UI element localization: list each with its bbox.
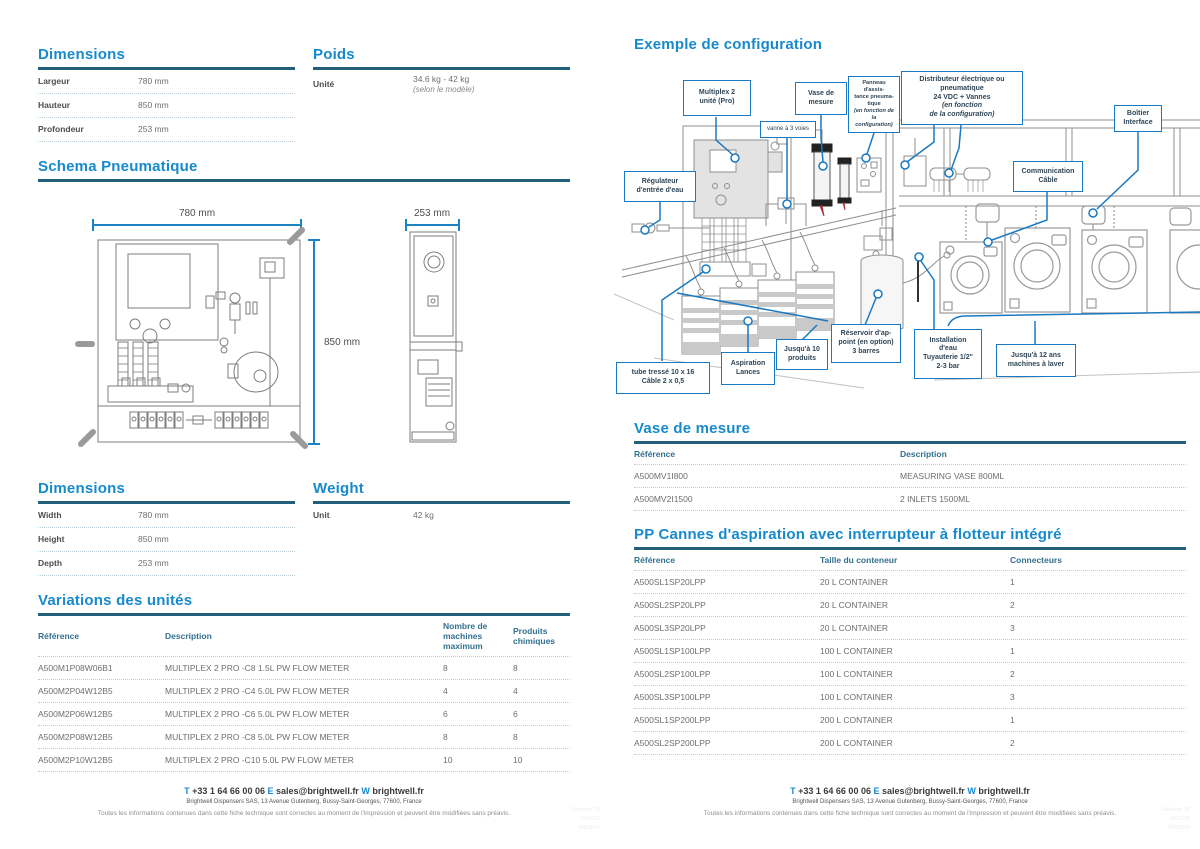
table-row: A500M2P06W12B5 MULTIPLEX 2 PRO -C6 5.0L … xyxy=(38,703,570,726)
col-produits: Produits chimiques xyxy=(513,626,570,646)
reservoir-art xyxy=(861,210,950,333)
phone-number: +33 1 64 66 00 06 xyxy=(798,786,871,796)
callout-installation-eau: Installation d'eau Tuyauterie 1/2" 2-3 b… xyxy=(914,329,982,379)
revision-note-right: Revision 15 G02025 BW2814 xyxy=(1130,806,1190,832)
table-row: Hauteur 850 mm xyxy=(38,94,295,118)
cell-taille: 200 L CONTAINER xyxy=(820,738,1010,748)
web-address: brightwell.fr xyxy=(372,786,424,796)
dimensions-en-title: Dimensions xyxy=(38,480,295,497)
email-label: E xyxy=(267,786,273,796)
email-address: sales@brightwell.fr xyxy=(882,786,965,796)
weight-row: Unit 42 kg xyxy=(313,504,570,528)
weight-title: Weight xyxy=(313,480,570,497)
table-row: A500M1P08W06B1 MULTIPLEX 2 PRO -C8 1.5L … xyxy=(38,657,570,680)
schema-title: Schema Pneumatique xyxy=(38,158,570,175)
callout-jusqua-12-machines: Jusqu'à 12 ans machines à laver xyxy=(996,344,1076,377)
cell-reference: A500MV1I800 xyxy=(634,471,900,481)
variations-table-body: A500M1P08W06B1 MULTIPLEX 2 PRO -C8 1.5L … xyxy=(38,657,570,772)
table-row: A500SL2SP20LPP 20 L CONTAINER 2 xyxy=(634,594,1186,617)
config-title: Exemple de configuration xyxy=(634,36,1186,53)
variations-title: Variations des unités xyxy=(38,592,570,609)
footer-disclaimer: Toutes les informations contenues dans c… xyxy=(38,810,570,817)
pp-header-row: Référence Taille du conteneur Connecteur… xyxy=(634,550,1186,571)
table-row: A500M2P04W12B5 MULTIPLEX 2 PRO -C4 5.0L … xyxy=(38,680,570,703)
col-connecteurs: Connecteurs xyxy=(1010,555,1186,565)
footer-address: Brightwell Dispensers SAS, 13 Avenue Gut… xyxy=(634,799,1186,805)
row-value: 253 mm xyxy=(138,558,295,568)
row-label: Unité xyxy=(313,79,413,89)
web-label: W xyxy=(967,786,976,796)
callout-multiplex: Multiplex 2 unité (Pro) xyxy=(683,80,751,116)
table-row: Height 850 mm xyxy=(38,528,295,552)
cell-description: MEASURING VASE 800ML xyxy=(900,471,1186,481)
measuring-vase-art xyxy=(800,130,851,216)
row-value: 850 mm xyxy=(138,534,295,544)
table-row: A500SL1SP200LPP 200 L CONTAINER 1 xyxy=(634,709,1186,732)
section-schema: Schema Pneumatique xyxy=(38,158,570,182)
vase-title: Vase de mesure xyxy=(634,420,1186,437)
cell-description: MULTIPLEX 2 PRO -C6 5.0L PW FLOW METER xyxy=(165,709,443,719)
web-label: W xyxy=(361,786,370,796)
table-row: A500M2P10W12B5 MULTIPLEX 2 PRO -C10 5.0L… xyxy=(38,749,570,772)
poids-note: (selon le modèle) xyxy=(413,85,474,94)
cell-reference: A500SL2SP20LPP xyxy=(634,600,820,610)
row-label: Unit xyxy=(313,510,413,520)
cell-machines: 4 xyxy=(443,686,513,696)
cell-reference: A500M1P08W06B1 xyxy=(38,663,165,673)
callout-jusqua-10-produits: Jusqu'à 10 produits xyxy=(776,339,828,370)
cell-connecteurs: 1 xyxy=(1010,646,1186,656)
dim-height-label: 850 mm xyxy=(324,337,360,348)
variations-header-row: Référence Description Nombre de machines… xyxy=(38,616,570,657)
cell-connecteurs: 1 xyxy=(1010,577,1186,587)
cell-taille: 20 L CONTAINER xyxy=(820,600,1010,610)
cell-reference: A500M2P04W12B5 xyxy=(38,686,165,696)
valve-row-left xyxy=(130,412,183,428)
footer-address: Brightwell Dispensers SAS, 13 Avenue Gut… xyxy=(38,799,570,805)
row-value: 850 mm xyxy=(138,100,295,110)
cell-description: MULTIPLEX 2 PRO -C8 1.5L PW FLOW METER xyxy=(165,663,443,673)
col-taille: Taille du conteneur xyxy=(820,555,1010,565)
washing-machines-art xyxy=(940,204,1200,313)
cell-reference: A500M2P06W12B5 xyxy=(38,709,165,719)
section-config: Exemple de configuration xyxy=(634,36,1186,53)
cell-reference: A500MV2I1500 xyxy=(634,494,900,504)
footer-contact: T +33 1 64 66 00 06 E sales@brightwell.f… xyxy=(634,786,1186,796)
divider xyxy=(38,179,570,182)
footer-disclaimer: Toutes les informations contenues dans c… xyxy=(634,810,1186,817)
dimensions-fr-table: Largeur 780 mm Hauteur 850 mm Profondeur… xyxy=(38,70,295,142)
section-pp-cannes: PP Cannes d'aspiration avec interrupteur… xyxy=(634,526,1186,755)
cell-machines: 8 xyxy=(443,663,513,673)
cell-machines: 10 xyxy=(443,755,513,765)
cell-machines: 6 xyxy=(443,709,513,719)
col-description: Description xyxy=(165,631,443,641)
cell-produits: 8 xyxy=(513,663,570,673)
vase-table-body: A500MV1I800 MEASURING VASE 800ML A500MV2… xyxy=(634,465,1186,511)
email-label: E xyxy=(873,786,879,796)
pp-table-body: A500SL1SP20LPP 20 L CONTAINER 1 A500SL2S… xyxy=(634,571,1186,755)
row-label: Profondeur xyxy=(38,124,138,134)
row-label: Depth xyxy=(38,558,138,568)
cell-connecteurs: 2 xyxy=(1010,738,1186,748)
row-value: 42 kg xyxy=(413,510,570,520)
callout-boitier-interface: Boîtier Interface xyxy=(1114,105,1162,132)
callout-panneau-assistance: Panneau d'assis- tance pneuma- tique (en… xyxy=(848,76,900,133)
cell-description: MULTIPLEX 2 PRO -C10 5.0L PW FLOW METER xyxy=(165,755,443,765)
callout-aspiration-lances: Aspiration Lances xyxy=(721,352,775,385)
cell-reference: A500M2P10W12B5 xyxy=(38,755,165,765)
table-row: A500SL1SP20LPP 20 L CONTAINER 1 xyxy=(634,571,1186,594)
row-value: 780 mm xyxy=(138,76,295,86)
cell-machines: 8 xyxy=(443,732,513,742)
col-reference: Référence xyxy=(634,449,900,459)
cell-taille: 200 L CONTAINER xyxy=(820,715,1010,725)
table-row: A500MV2I1500 2 INLETS 1500ML xyxy=(634,488,1186,511)
valve-row-right xyxy=(186,412,268,428)
email-address: sales@brightwell.fr xyxy=(276,786,359,796)
row-value: 34.6 kg - 42 kg (selon le modèle) xyxy=(413,74,570,94)
cell-connecteurs: 1 xyxy=(1010,715,1186,725)
cell-description: 2 INLETS 1500ML xyxy=(900,494,1186,504)
table-row: A500M2P08W12B5 MULTIPLEX 2 PRO -C8 5.0L … xyxy=(38,726,570,749)
cell-connecteurs: 3 xyxy=(1010,623,1186,633)
table-row: Width 780 mm xyxy=(38,504,295,528)
cell-description: MULTIPLEX 2 PRO -C4 5.0L PW FLOW METER xyxy=(165,686,443,696)
poids-title: Poids xyxy=(313,46,570,63)
cell-reference: A500SL2SP100LPP xyxy=(634,669,820,679)
cell-reference: A500SL1SP100LPP xyxy=(634,646,820,656)
cell-connecteurs: 3 xyxy=(1010,692,1186,702)
pneumatic-panel-art xyxy=(857,158,881,192)
callout-reservoir-appoint: Réservoir d'ap- point (en option) 3 barr… xyxy=(831,324,901,363)
section-dimensions-fr: Dimensions Largeur 780 mm Hauteur 850 mm… xyxy=(38,46,295,142)
dim-depth-label: 253 mm xyxy=(414,208,450,219)
row-label: Hauteur xyxy=(38,100,138,110)
table-row: A500MV1I800 MEASURING VASE 800ML xyxy=(634,465,1186,488)
cell-taille: 100 L CONTAINER xyxy=(820,669,1010,679)
cell-connecteurs: 2 xyxy=(1010,669,1186,679)
row-value: 253 mm xyxy=(138,124,295,134)
distributor-art xyxy=(904,138,990,192)
callout-vase-de-mesure: Vase de mesure xyxy=(795,82,847,115)
cell-produits: 6 xyxy=(513,709,570,719)
cell-reference: A500SL1SP200LPP xyxy=(634,715,820,725)
pneumatic-schema-drawing: 780 mm 850 mm 253 mm xyxy=(38,192,570,464)
phone-number: +33 1 64 66 00 06 xyxy=(192,786,265,796)
callout-vanne-3-voies: vanne à 3 voies xyxy=(760,121,816,138)
cell-reference: A500SL3SP20LPP xyxy=(634,623,820,633)
cell-taille: 20 L CONTAINER xyxy=(820,623,1010,633)
phone-label: T xyxy=(184,786,190,796)
table-row: A500SL1SP100LPP 100 L CONTAINER 1 xyxy=(634,640,1186,663)
callout-communication-cable: Communication Câble xyxy=(1013,161,1083,192)
cell-description: MULTIPLEX 2 PRO -C8 5.0L PW FLOW METER xyxy=(165,732,443,742)
callout-tube-tresse: tube tressé 10 x 16 Câble 2 x 0,5 xyxy=(616,362,710,394)
cell-connecteurs: 2 xyxy=(1010,600,1186,610)
cell-reference: A500SL2SP200LPP xyxy=(634,738,820,748)
table-row: Depth 253 mm xyxy=(38,552,295,576)
side-view xyxy=(410,232,462,442)
footer-left: T +33 1 64 66 00 06 E sales@brightwell.f… xyxy=(38,786,570,817)
dimensions-fr-title: Dimensions xyxy=(38,46,295,63)
table-row: A500SL2SP100LPP 100 L CONTAINER 2 xyxy=(634,663,1186,686)
cell-reference: A500M2P08W12B5 xyxy=(38,732,165,742)
cell-taille: 100 L CONTAINER xyxy=(820,692,1010,702)
table-row: A500SL2SP200LPP 200 L CONTAINER 2 xyxy=(634,732,1186,755)
cell-produits: 4 xyxy=(513,686,570,696)
cell-reference: A500SL1SP20LPP xyxy=(634,577,820,587)
section-dimensions-en: Dimensions Width 780 mm Height 850 mm De… xyxy=(38,480,295,576)
vase-header-row: Référence Description xyxy=(634,444,1186,465)
section-poids: Poids Unité 34.6 kg - 42 kg (selon le mo… xyxy=(313,46,570,100)
col-reference: Référence xyxy=(38,631,165,641)
cell-reference: A500SL3SP100LPP xyxy=(634,692,820,702)
table-row: A500SL3SP100LPP 100 L CONTAINER 3 xyxy=(634,686,1186,709)
table-row: A500SL3SP20LPP 20 L CONTAINER 3 xyxy=(634,617,1186,640)
col-reference: Référence xyxy=(634,555,820,565)
cell-produits: 10 xyxy=(513,755,570,765)
section-vase-de-mesure: Vase de mesure Référence Description A50… xyxy=(634,420,1186,511)
section-variations: Variations des unités Référence Descript… xyxy=(38,592,570,772)
row-label: Largeur xyxy=(38,76,138,86)
section-weight: Weight Unit 42 kg xyxy=(313,480,570,528)
cell-taille: 100 L CONTAINER xyxy=(820,646,1010,656)
web-address: brightwell.fr xyxy=(978,786,1030,796)
revision-note-left: Revision 15 G02025 BW2814 xyxy=(540,806,600,832)
table-row: Largeur 780 mm xyxy=(38,70,295,94)
row-label: Width xyxy=(38,510,138,520)
dimension-lines xyxy=(93,219,459,444)
table-row: Profondeur 253 mm xyxy=(38,118,295,142)
dimensions-en-table: Width 780 mm Height 850 mm Depth 253 mm xyxy=(38,504,295,576)
poids-row: Unité 34.6 kg - 42 kg (selon le modèle) xyxy=(313,70,570,100)
front-view xyxy=(78,230,305,446)
callout-distributeur: Distributeur électrique ou pneumatique 2… xyxy=(901,71,1023,125)
config-diagram: Multiplex 2 unité (Pro) vanne à 3 voies … xyxy=(614,58,1200,410)
callout-regulateur: Régulateur d'entrée d'eau xyxy=(624,171,696,202)
col-description: Description xyxy=(900,449,1186,459)
pp-title: PP Cannes d'aspiration avec interrupteur… xyxy=(634,526,1186,543)
row-value: 780 mm xyxy=(138,510,295,520)
footer-contact: T +33 1 64 66 00 06 E sales@brightwell.f… xyxy=(38,786,570,796)
col-machines: Nombre de machines maximum xyxy=(443,621,513,651)
dim-width-label: 780 mm xyxy=(179,208,215,219)
cell-produits: 8 xyxy=(513,732,570,742)
phone-label: T xyxy=(790,786,796,796)
cell-taille: 20 L CONTAINER xyxy=(820,577,1010,587)
row-label: Height xyxy=(38,534,138,544)
footer-right: T +33 1 64 66 00 06 E sales@brightwell.f… xyxy=(634,786,1186,817)
